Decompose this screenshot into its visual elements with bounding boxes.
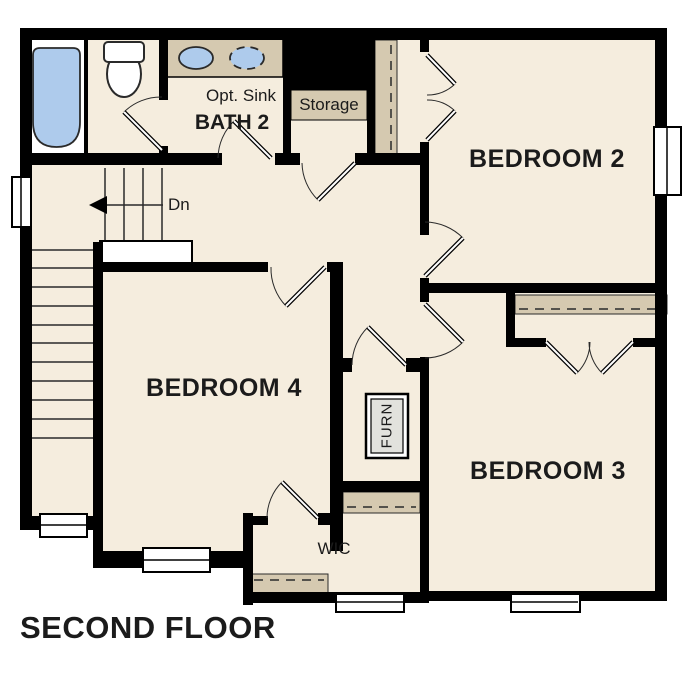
wic-rod-right xyxy=(343,492,420,513)
wall-chase xyxy=(283,28,375,90)
room-label-wic: WIC xyxy=(284,540,384,557)
plan-title: SECOND FLOOR xyxy=(20,612,420,643)
optional-sink-fixture xyxy=(230,47,264,69)
room-label-storage: Storage xyxy=(291,96,367,113)
floor-plan: BEDROOM 2 BEDROOM 3 BEDROOM 4 BATH 2 Opt… xyxy=(0,0,687,687)
window-bedroom2 xyxy=(654,127,681,195)
annotation-stairs-down: Dn xyxy=(168,196,208,213)
toilet-fixture xyxy=(104,42,144,97)
room-label-bedroom2: BEDROOM 2 xyxy=(437,147,657,172)
room-label-furnace: FURN xyxy=(380,396,395,456)
wall-right xyxy=(655,28,667,601)
room-label-bath2: BATH 2 xyxy=(162,112,302,133)
window-corridor xyxy=(40,514,87,537)
wall-toilet-partition xyxy=(159,38,168,100)
wall-left xyxy=(20,28,32,530)
window-bedroom4 xyxy=(143,548,210,572)
bedroom2-closet-rod xyxy=(375,40,397,162)
window-wic xyxy=(336,594,404,612)
bathtub-fixture xyxy=(33,48,80,147)
window-bedroom3 xyxy=(511,594,580,612)
room-label-bedroom4: BEDROOM 4 xyxy=(114,376,334,401)
wic-rod-left xyxy=(250,574,328,595)
annotation-opt-sink: Opt. Sink xyxy=(171,87,311,104)
stairs-landing xyxy=(100,241,192,263)
room-label-bedroom3: BEDROOM 3 xyxy=(438,459,658,484)
bedroom3-closet-rod xyxy=(515,295,667,314)
wall-tub-partition xyxy=(84,38,88,155)
window-left-hall xyxy=(12,177,31,227)
sink-fixture xyxy=(179,47,213,69)
